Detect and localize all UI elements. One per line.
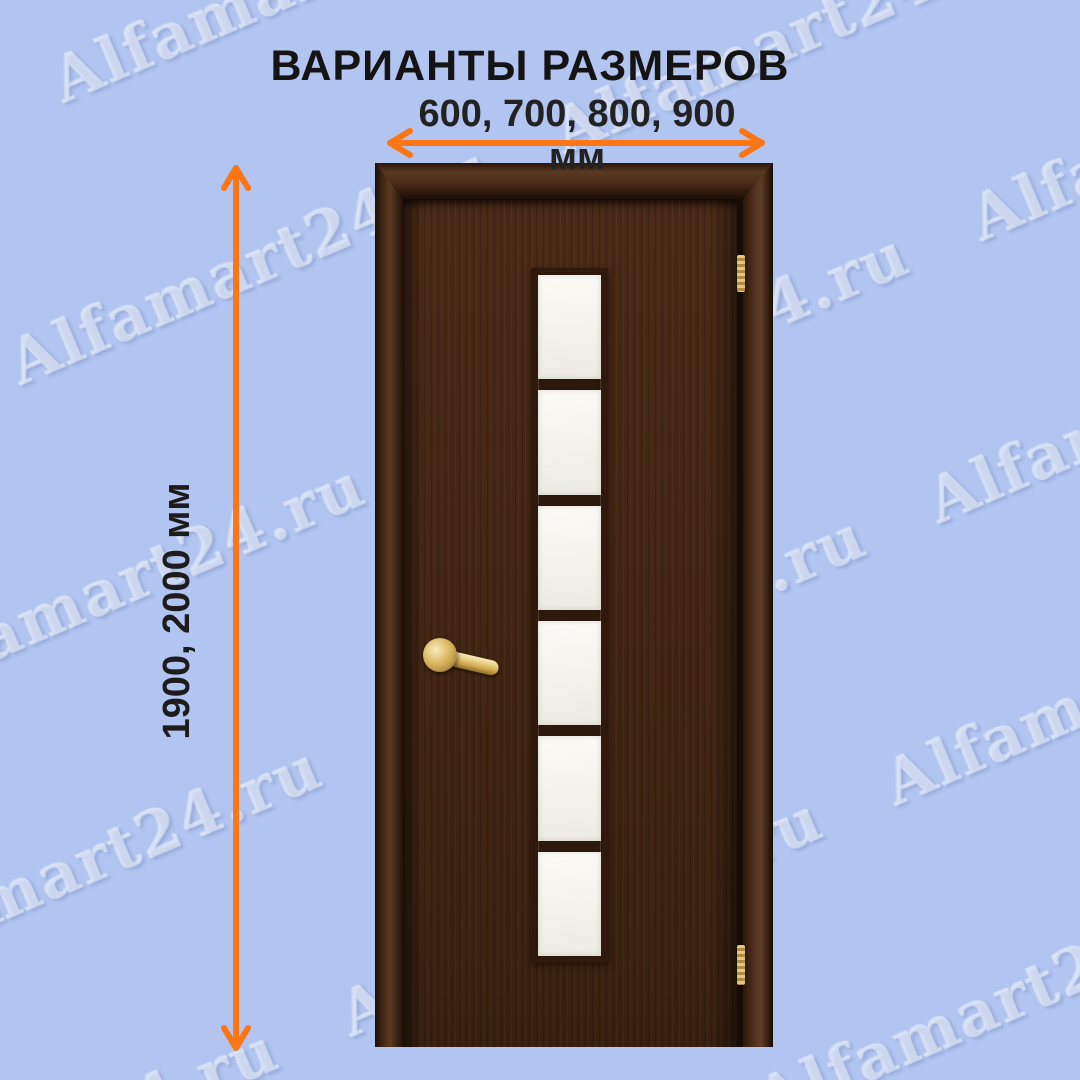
watermark-text: Alfamart24.ru bbox=[959, 0, 1080, 255]
door-hinge-top bbox=[737, 255, 745, 292]
door-glass-insert bbox=[531, 268, 608, 963]
page-title: ВАРИАНТЫ РАЗМЕРОВ bbox=[0, 42, 1060, 91]
watermark-text: Alfamart24.ru bbox=[0, 79, 2, 348]
glass-pane bbox=[538, 275, 601, 379]
door-hinge-bottom bbox=[737, 945, 745, 985]
watermark-text: Alfamart24.ru bbox=[873, 551, 1080, 820]
watermark-row: Alfamart24.ruAlfamart24.ruAlfamart24.ruA… bbox=[0, 0, 1080, 15]
glass-pane bbox=[538, 390, 601, 494]
door-handle bbox=[423, 638, 457, 672]
height-arrow-icon bbox=[221, 160, 251, 1056]
door-leaf bbox=[403, 200, 737, 1047]
door-frame-left bbox=[375, 163, 403, 1047]
door-photo bbox=[375, 163, 773, 1047]
watermark-text: Alfamart24.ru bbox=[746, 869, 1080, 1080]
glass-pane bbox=[538, 736, 601, 840]
glass-pane bbox=[538, 506, 601, 610]
glass-pane bbox=[538, 621, 601, 725]
size-variants-banner: Alfamart24.ruAlfamart24.ruAlfamart24.ruA… bbox=[0, 0, 1080, 1080]
width-arrow-icon bbox=[382, 128, 770, 158]
glass-pane bbox=[538, 852, 601, 956]
watermark-text: Alfamart24.ru bbox=[916, 268, 1080, 537]
door-frame-right bbox=[743, 163, 773, 1047]
height-dimension-label: 1900, 2000 мм bbox=[152, 361, 202, 861]
